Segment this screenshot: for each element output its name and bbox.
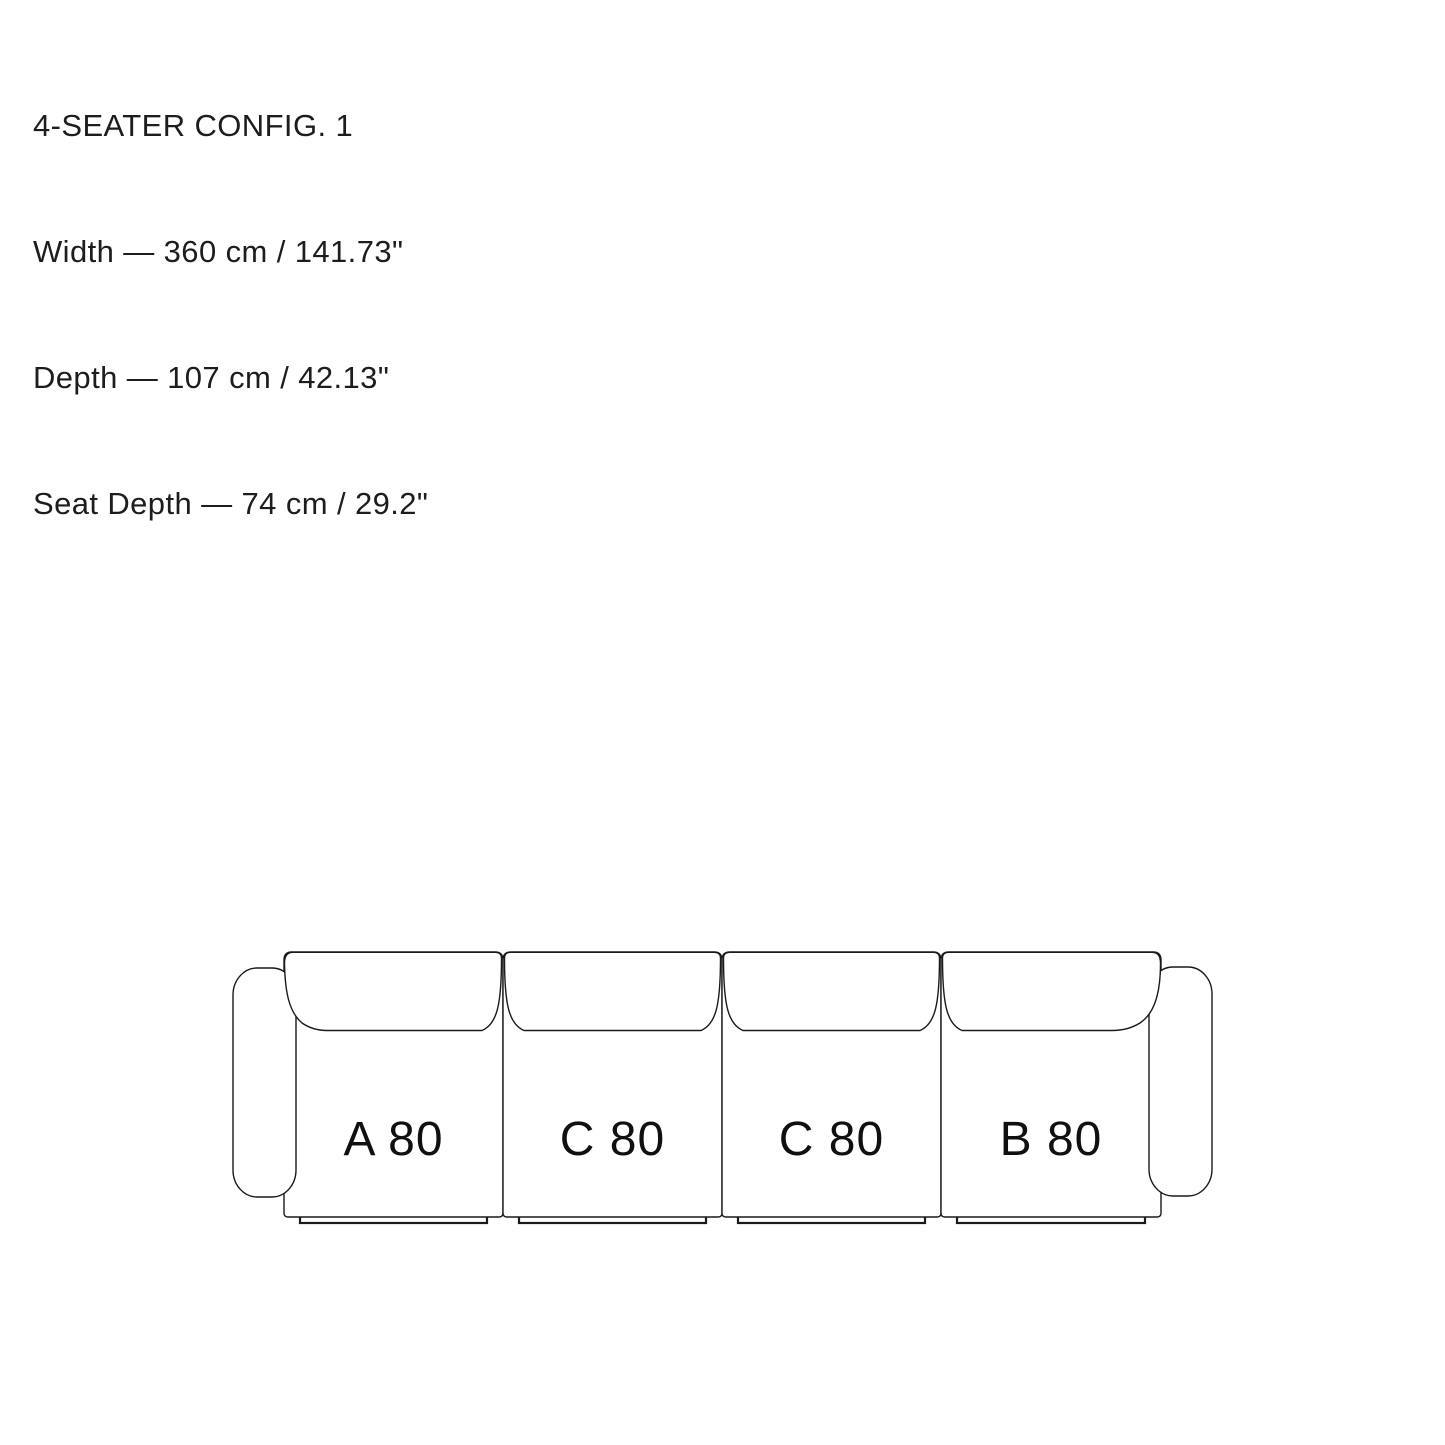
spec-sheet-page: 4-SEATER CONFIG. 1 Width — 360 cm / 141.… <box>0 0 1445 1445</box>
module-label-b80: B 80 <box>1000 1113 1103 1166</box>
module-label-a80: A 80 <box>343 1113 443 1166</box>
left-armrest <box>233 968 296 1197</box>
module-label-c80-2: C 80 <box>779 1113 884 1166</box>
backrest-cushion-b80 <box>943 952 1161 1030</box>
sofa-top-view-diagram: A 80 C 80 C 80 B 80 <box>0 0 1445 1445</box>
right-armrest <box>1149 967 1212 1196</box>
backrest-cushion-a80 <box>285 952 502 1030</box>
backrest-cushion-c80-1 <box>505 952 721 1030</box>
module-label-c80-1: C 80 <box>560 1113 665 1166</box>
backrest-cushion-c80-2 <box>724 952 940 1030</box>
